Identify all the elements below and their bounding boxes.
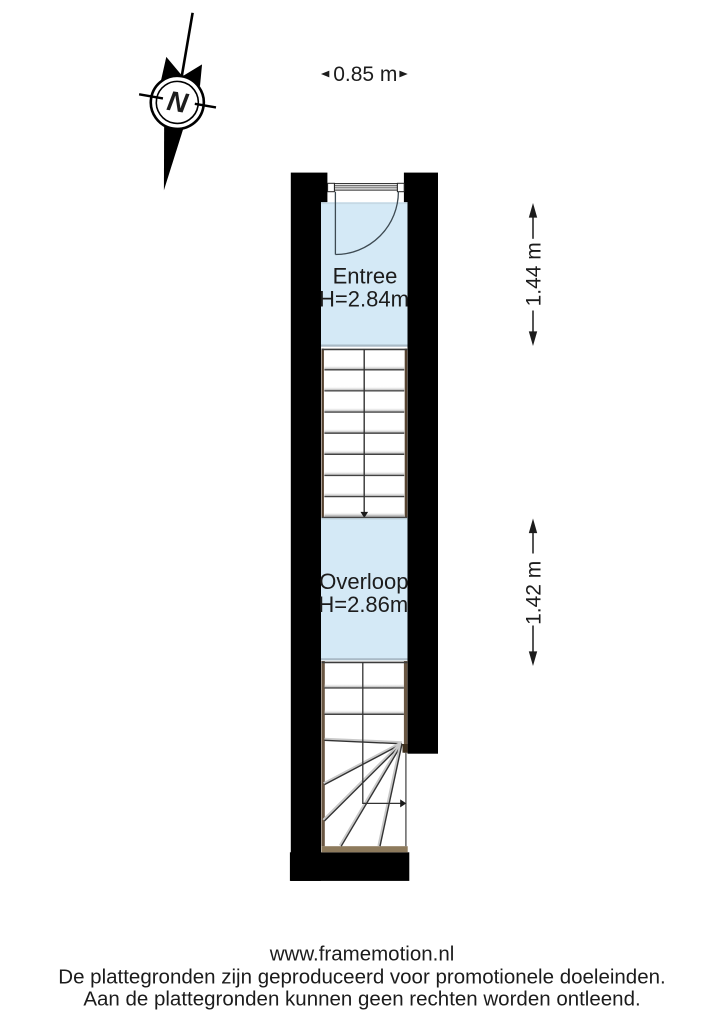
svg-text:1.42 m: 1.42 m: [522, 561, 545, 625]
svg-text:Aan de plattegronden kunnen ge: Aan de plattegronden kunnen geen rechten…: [83, 987, 640, 1010]
svg-text:H=2.86m: H=2.86m: [318, 592, 408, 617]
svg-text:Overloop: Overloop: [319, 569, 408, 594]
svg-text:0.85 m: 0.85 m: [333, 63, 397, 86]
svg-text:www.framemotion.nl: www.framemotion.nl: [269, 942, 455, 965]
svg-text:H=2.84m: H=2.84m: [319, 286, 409, 311]
svg-text:Entree: Entree: [333, 264, 398, 289]
svg-text:1.44 m: 1.44 m: [522, 242, 545, 306]
svg-text:De plattegronden zijn geproduc: De plattegronden zijn geproduceerd voor …: [58, 966, 665, 989]
